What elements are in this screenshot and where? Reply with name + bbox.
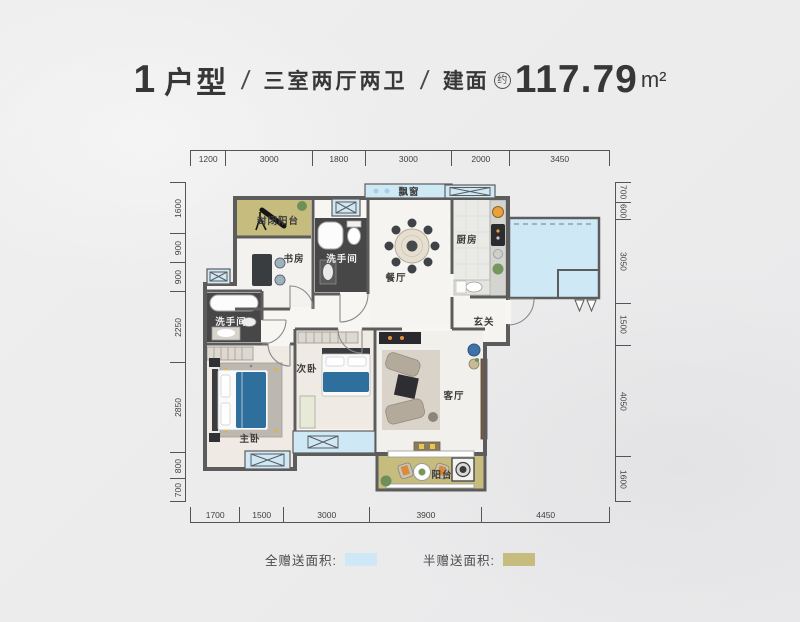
dimension-segment: 1600 [170,182,185,233]
legend: 全赠送面积: 半赠送面积: [0,550,800,569]
room-label-study: 书房 [283,251,304,265]
dimension-segment: 3000 [365,151,452,166]
dimension-value: 3000 [399,154,418,164]
dimension-segment: 900 [170,233,185,262]
separator-slash: / [419,65,431,96]
unit-type-label: 户型 [164,58,228,102]
dimension-segment: 4050 [616,345,631,456]
dimension-segment: 1200 [190,151,225,166]
toilet-icon [348,228,361,245]
balcony-railing [386,484,474,488]
dimension-value: 600 [619,204,629,218]
living-sideboard-icon [414,442,440,451]
dimension-value: 3000 [317,510,336,520]
dimension-segment: 3000 [225,151,312,166]
approx-circle-icon: 约 [494,72,511,89]
room-label-bathroom-top: 洗手间 [326,251,358,265]
dimension-segment: 3450 [509,151,610,166]
area-label: 建面 [443,65,489,95]
room-label-bedroom-master: 主卧 [239,431,260,445]
legend-full-gift-swatch [345,553,377,566]
dimensions-right: 7006003050150040501600 [615,182,631,502]
plant-icon [493,264,504,275]
legend-item-half-gift: 半赠送面积: [423,550,535,569]
dimension-value: 900 [173,241,183,255]
living-window [388,451,474,457]
dimension-segment: 600 [616,202,631,219]
dimension-segment: 1700 [190,507,239,522]
dimension-segment: 2250 [170,291,185,362]
dimension-value: 4450 [536,510,555,520]
washing-machine-icon [452,458,474,481]
sofa-set-icon [382,350,440,430]
area-unit: m² [641,67,667,93]
entry-arrow-icon [575,300,584,311]
legend-item-full-gift: 全赠送面积: [265,550,377,569]
dimension-segment: 3000 [283,507,369,522]
dimension-value: 4050 [619,392,629,411]
dimension-value: 3450 [550,154,569,164]
room-label-bay-window: 飘窗 [398,184,419,198]
dimensions-left: 160090090022502850800700 [170,182,186,502]
dimension-value: 3000 [260,154,279,164]
room-label-enclosed-balcony: 封闭阳台 [257,213,299,227]
dimension-value: 3900 [416,510,435,520]
room-label-dining: 餐厅 [385,270,406,284]
dimension-value: 900 [173,270,183,284]
legend-half-gift-swatch [503,553,535,566]
dimension-segment: 700 [170,478,185,502]
bedroom2-desk-icon [300,396,315,428]
dimension-segment: 1800 [312,151,364,166]
legend-half-gift-label: 半赠送面积: [423,550,495,569]
stove-icon [493,207,504,218]
unit-number: 1 [134,58,157,102]
dimension-value: 1500 [619,315,629,334]
flue-x-icon [293,431,375,453]
dimension-segment: 3900 [369,507,481,522]
room-label-bathroom-left: 洗手间 [215,314,247,328]
dimension-value: 2000 [471,154,490,164]
flue-x-icon [207,269,230,284]
dimension-segment: 1600 [616,456,631,502]
dimension-segment: 3050 [616,219,631,303]
oven-icon [491,224,505,246]
flue-x-icon [445,185,495,198]
dimension-value: 700 [619,185,629,199]
dimension-segment: 2850 [170,362,185,452]
room-label-living: 客厅 [443,388,464,402]
dimension-segment: 900 [170,262,185,291]
dimension-value: 1800 [329,154,348,164]
legend-full-gift-label: 全赠送面积: [265,550,337,569]
plant-icon [419,469,426,476]
dimension-value: 1600 [173,199,183,218]
dimension-value: 1500 [252,510,271,520]
master-bed-icon [209,358,282,442]
entry-gap [505,300,511,324]
area-value: 117.79 [515,58,638,102]
dimension-value: 1200 [199,154,218,164]
terrace [509,218,599,311]
dimension-segment: 4450 [481,507,610,522]
dimension-value: 700 [173,483,183,497]
separator-slash: / [240,65,252,96]
dimensions-top: 120030001800300020003450 [190,150,610,166]
room-label-kitchen: 厨房 [456,232,477,246]
dimension-value: 2850 [173,398,183,417]
plant-icon [381,476,392,487]
floorplan-drawing [190,182,610,502]
flue-x-icon [245,451,290,469]
dimensions-bottom: 17001500300039004450 [190,507,610,523]
entry-arrow-icon [587,300,596,311]
page-title: 1 户型 / 三室两厅两卫 / 建面 约 117.79 m² [0,58,800,102]
room-label-balcony: 阳台 [431,467,452,481]
dimension-segment: 800 [170,452,185,478]
dimension-value: 1700 [206,510,225,520]
dimension-segment: 700 [616,182,631,202]
plant-icon [297,201,307,211]
dimension-value: 800 [173,459,183,473]
dimension-segment: 1500 [239,507,283,522]
tv-cabinet-icon [379,332,421,344]
dimension-segment: 2000 [451,151,509,166]
room-label-foyer: 玄关 [473,314,494,328]
room-label-bedroom-second: 次卧 [296,361,317,375]
layout-text: 三室两厅两卫 [263,65,407,95]
dimension-value: 2250 [173,318,183,337]
floorplan: 飘窗 封闭阳台 书房 洗手间 餐厅 厨房 玄关 洗手间 次卧 主卧 客厅 阳台 [190,182,610,502]
dimension-segment: 1500 [616,303,631,345]
dimension-value: 3050 [619,252,629,271]
flue-x-icon [332,199,360,216]
dimension-value: 1600 [619,470,629,489]
bedroom2-closet-icon [298,332,358,343]
